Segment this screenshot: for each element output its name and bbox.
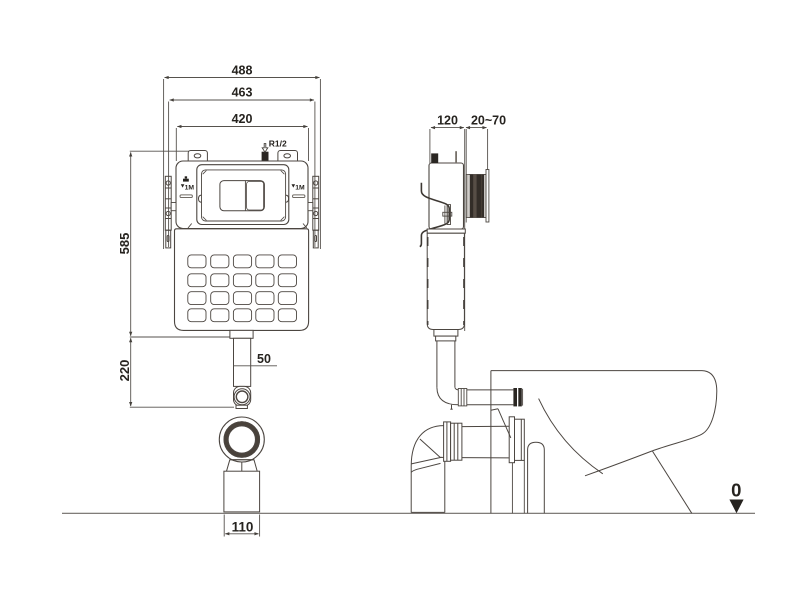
svg-text:120: 120	[437, 113, 458, 127]
svg-text:110: 110	[232, 520, 254, 535]
svg-text:585: 585	[117, 233, 132, 255]
svg-text:1M: 1M	[185, 185, 195, 192]
svg-text:1M: 1M	[295, 185, 305, 192]
svg-text:R1/2: R1/2	[269, 139, 287, 149]
svg-text:0: 0	[731, 479, 741, 500]
svg-text:463: 463	[232, 86, 253, 100]
svg-text:20~70: 20~70	[471, 113, 506, 127]
svg-text:488: 488	[232, 64, 253, 78]
svg-text:420: 420	[232, 112, 253, 126]
svg-text:220: 220	[117, 360, 132, 382]
svg-text:50: 50	[257, 352, 271, 366]
